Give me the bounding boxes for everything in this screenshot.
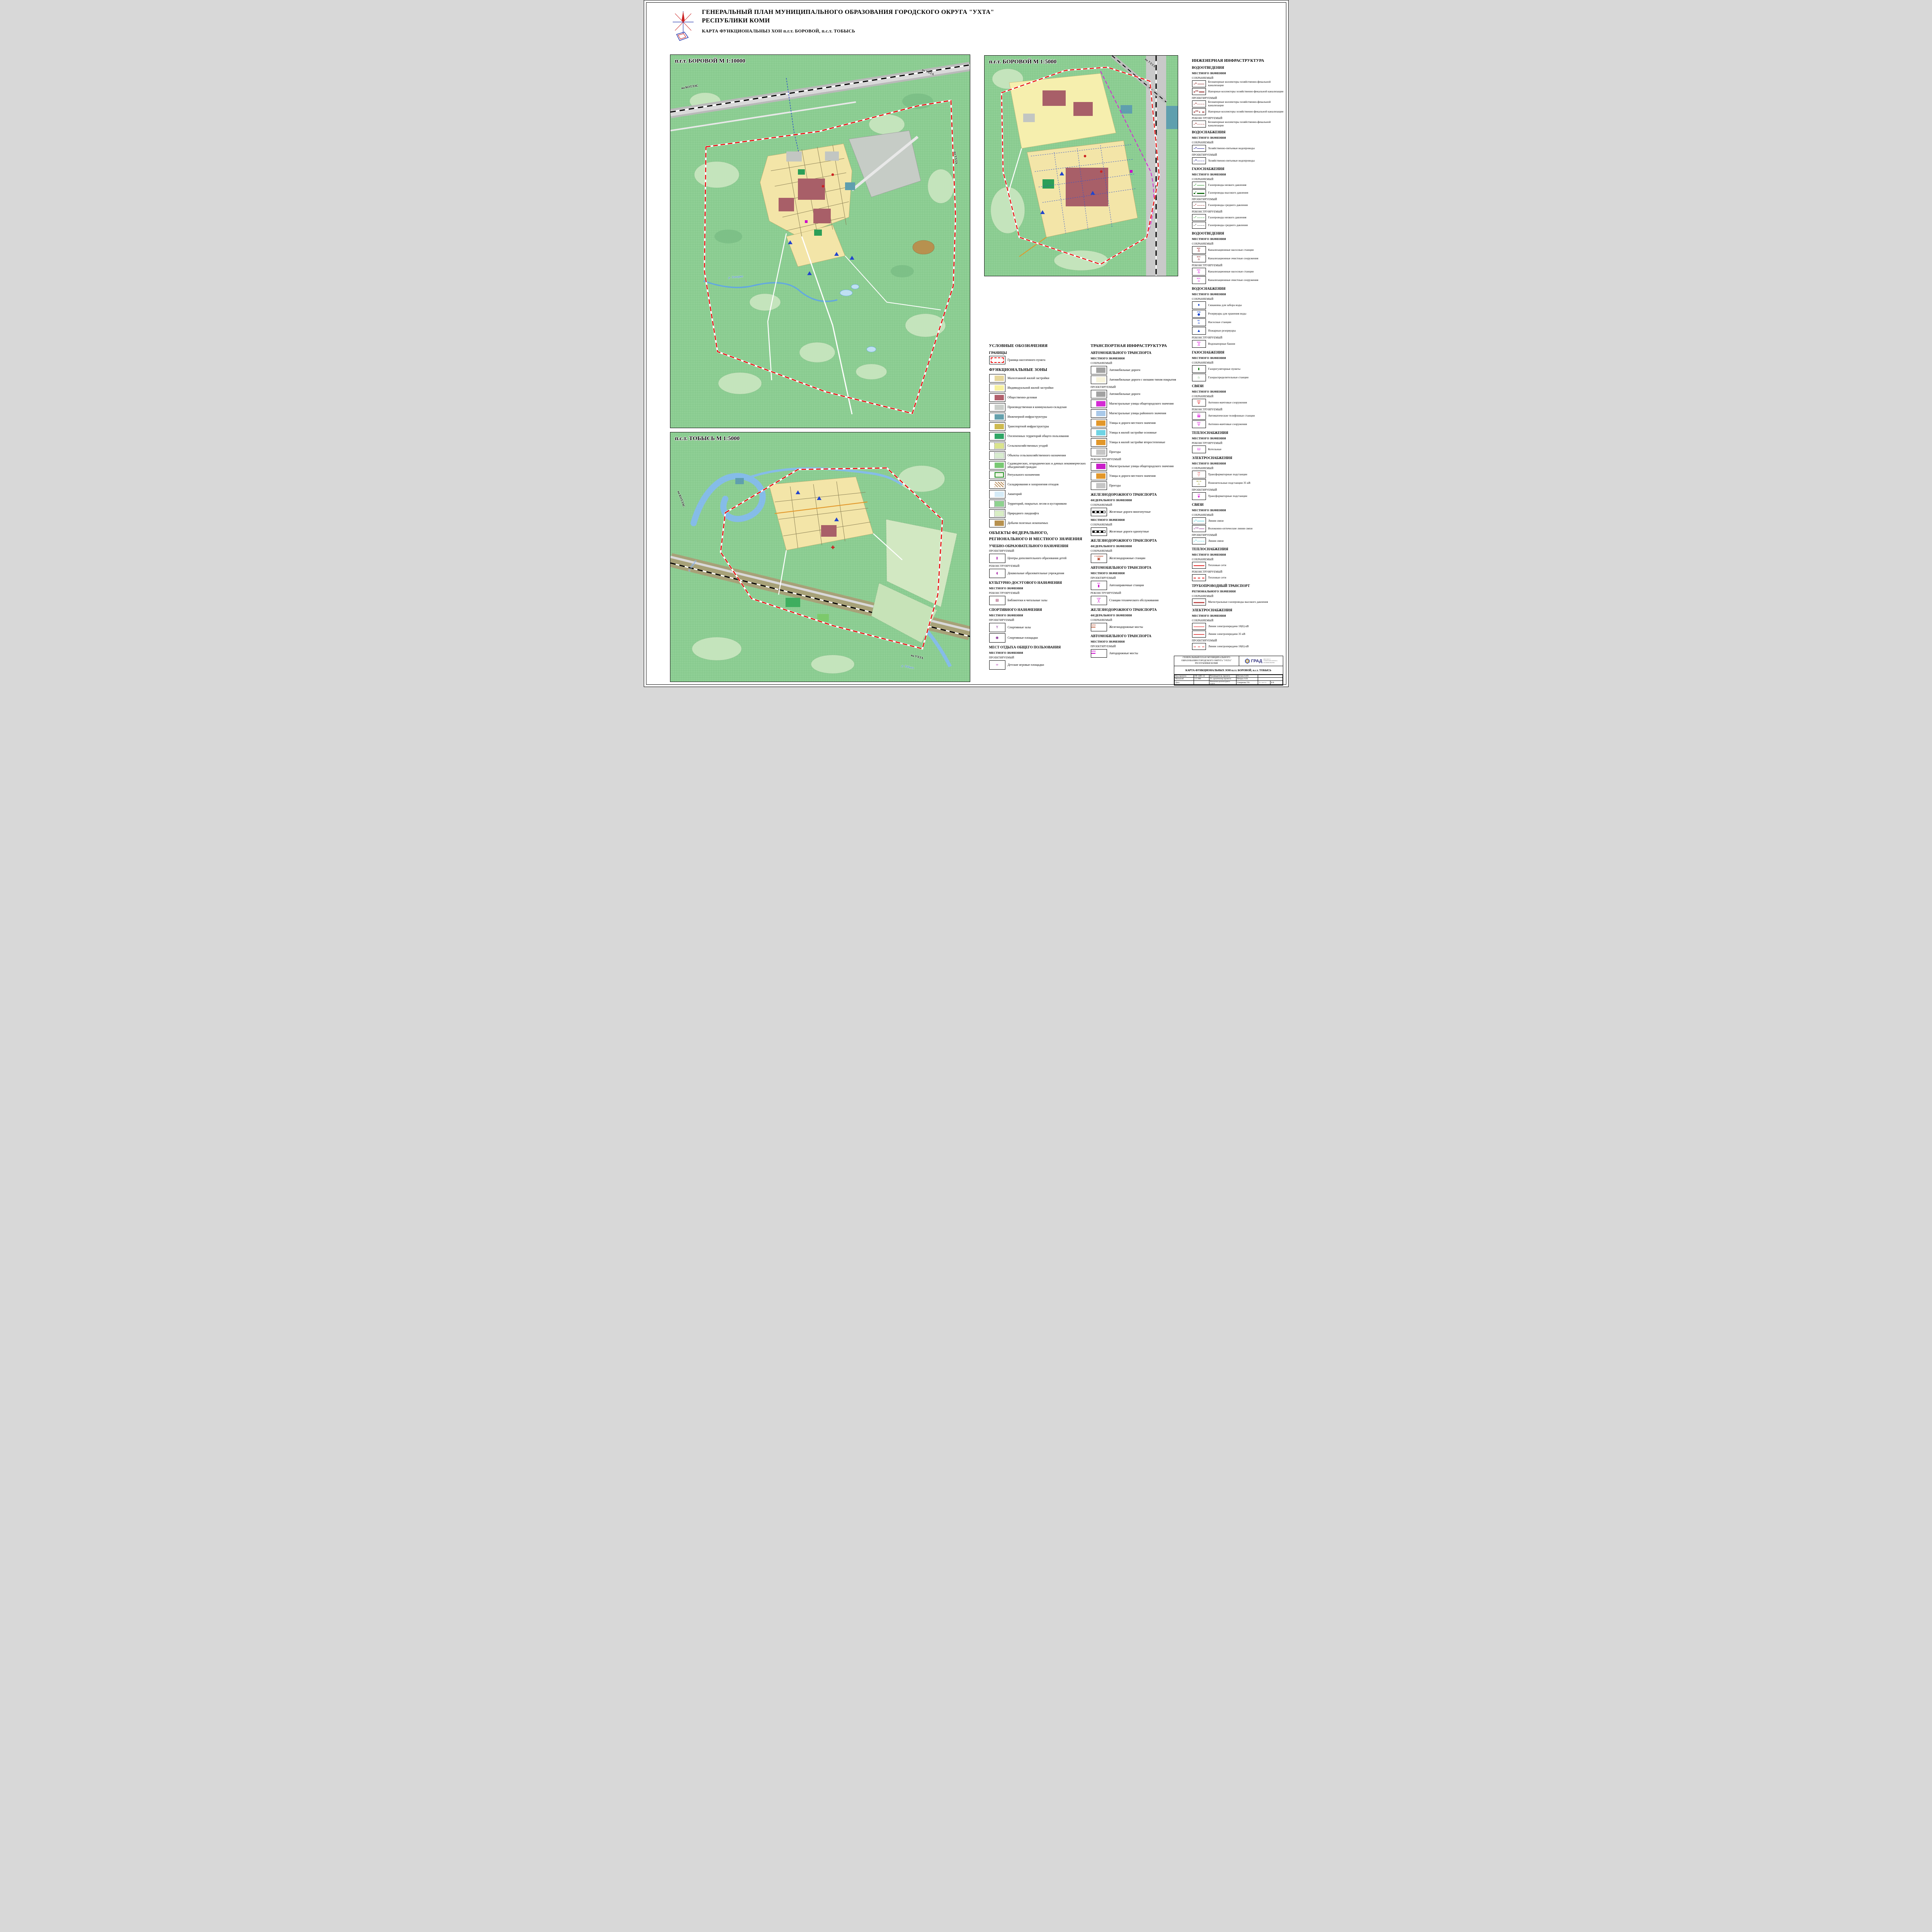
legend-swatch-line: VО: [1192, 525, 1206, 532]
legend-label: Автомобильные дороги с низшим типом покр…: [1109, 378, 1176, 381]
legend-heading: МЕСТ ОТДЫХА ОБЩЕГО ПОЛЬЗОВАНИЯ: [989, 645, 1087, 649]
legend-label: Автоматические телефонные станции: [1208, 414, 1255, 418]
legend-label: Инженерной инфраструктуры: [1008, 415, 1047, 418]
legend-label: Спортивные площадки: [1008, 636, 1038, 639]
legend-item: РЧВ●Резервуары для хранения воды: [1192, 310, 1284, 318]
legend-heading: ПРОЕКТИРУЕМЫЙ: [1192, 97, 1284, 100]
legend-heading: СОХРАНЯЕМЫЙ: [1192, 558, 1284, 561]
legend-label: Магистральные улицы общегородского значе…: [1109, 402, 1174, 405]
legend-swatch-zone: [1091, 429, 1107, 437]
map-tobys-5000-graphic: [670, 432, 970, 682]
legend-heading: МЕСТНОГО ЗНАЧЕНИЯ: [1192, 462, 1284, 465]
legend-item: ◉Спортивные площадки: [989, 633, 1087, 643]
map1-label: п.г.т. БОРОВОЙ М 1:10000: [675, 58, 745, 65]
legend-swatch-icon: КОС⌂: [1192, 255, 1206, 262]
legend-item: VЛинии связи: [1192, 537, 1284, 544]
legend-label: Железнодорожные станции: [1109, 556, 1146, 560]
legend-symbol-icon: ╳: [1098, 600, 1100, 603]
map-borovoy-5000: п.г.т. БОРОВОЙ М 1:5000 на УХТА: [984, 55, 1178, 276]
legend-swatch-zone: [989, 490, 1005, 498]
legend-label: Канализационные насосные станции: [1208, 270, 1254, 274]
legend-swatch-line: НК: [1192, 108, 1206, 115]
legend-swatch-zone: [1091, 409, 1107, 418]
legend-line-letter: К: [1195, 103, 1197, 105]
legend-label: Улицы и дороги местного значения: [1109, 474, 1156, 478]
legend-swatch-icon: ▤: [989, 596, 1005, 605]
legend-label: Напорные коллекторы хозяйственно-фекальн…: [1208, 90, 1284, 94]
legend-swatch-line: В: [1192, 157, 1206, 164]
legend-line-letter: В: [1195, 147, 1197, 150]
legend-swatch-zone: [989, 422, 1005, 431]
legend-label: Понизительные подстанции 35 кВ: [1208, 481, 1251, 485]
legend-item: Малоэтажной жилой застройки: [989, 374, 1087, 383]
grad-logo-subtext: ИНСТИТУТ ТЕРРИТОРИАЛЬНОГО ПЛАНИРОВАНИЯ: [1264, 658, 1277, 663]
legend-item: Производственная и коммунально-складская: [989, 403, 1087, 412]
legend-heading: ЖЕЛЕЗНОДОРОЖНОГО ТРАНСПОРТА: [1091, 539, 1188, 543]
legend-label: Автомобильные дороги: [1109, 368, 1141, 372]
legend-swatch-rail: [1091, 508, 1107, 516]
legend-label: Сельскохозяйственных угодий: [1008, 444, 1048, 447]
legend-heading: СВЯЗИ: [1192, 384, 1284, 388]
legend-label: Объекты сельскохозяйственного назначения: [1008, 454, 1066, 457]
legend-swatch-bridge: ΛΛΛ: [1091, 623, 1107, 631]
legend-swatch-line: НК: [1192, 88, 1206, 95]
legend-heading: ТЕПЛОСНАБЖЕНИЯ: [1192, 431, 1284, 435]
legend-item: НКНапорные коллекторы хозяйственно-фекал…: [1192, 108, 1284, 115]
legend-symbol-icon: Ψ: [1197, 423, 1200, 427]
legend-swatch-line: К: [1192, 80, 1206, 87]
legend-item: ♦Скважины для забора воды: [1192, 301, 1284, 309]
legend-heading: ФЕДЕРАЛЬНОГО ЗНАЧЕНИЯ: [1091, 544, 1188, 548]
legend-heading: МЕСТНОГО ЗНАЧЕНИЯ: [1192, 173, 1284, 176]
legend-heading: СОХРАНЯЕМЫЙ: [1192, 298, 1284, 301]
legend-swatch-line: [1192, 631, 1206, 638]
legend-swatch-zone: [989, 451, 1005, 460]
grad-logo-icon: [1245, 658, 1250, 664]
legend-heading: ГРАНИЦЫ: [989, 351, 1087, 355]
legend-swatch-icon: ТП▼: [1192, 492, 1206, 500]
legend-heading: ВОДООТВЕДЕНИЯ: [1192, 231, 1284, 235]
legend-heading: ВОДОСНАБЖЕНИЯ: [1192, 287, 1284, 291]
legend-item: ШКотельные: [1192, 446, 1284, 453]
map2-label: п.г.т. БОРОВОЙ М 1:5000: [989, 59, 1057, 65]
legend-symbol-icon: ⌂: [1198, 279, 1200, 282]
legend-label: Канализационные очистные сооружения: [1208, 257, 1259, 260]
legend-item: ГГазопроводы среднего давления: [1192, 222, 1284, 229]
legend-label: Железные дороги многопутные: [1109, 510, 1151, 514]
legend-swatch-icon: НС⌂: [1192, 318, 1206, 326]
legend-label: Резервуары для хранения воды: [1208, 312, 1247, 316]
legend-item: Автомобильные дороги: [1091, 366, 1188, 374]
legend-heading: СОХРАНЯЕМЫЙ: [1192, 595, 1284, 598]
legend-swatch-icon: АМСΨ: [1192, 399, 1206, 406]
legend-label: Волоконно-оптические линии связи: [1208, 527, 1253, 531]
legend-swatch-icon: ♦: [1192, 301, 1206, 309]
legend-heading: СОХРАНЯЕМЫЙ: [1192, 141, 1284, 144]
legend-label: Магистральные улицы общегородского значе…: [1109, 464, 1174, 468]
legend-label: Хозяйственно-питьевые водопроводы: [1208, 159, 1255, 163]
legend-swatch-line: Г: [1192, 214, 1206, 221]
legend-label: Котельные: [1208, 448, 1221, 451]
legend-swatch-icon: СТАНЦИЯ▣: [1091, 554, 1107, 563]
legend-item: ГГазопроводы низкого давления: [1192, 182, 1284, 189]
legend-heading: РЕКОНСТРУИРУЕМЫЙ: [1192, 570, 1284, 573]
legend-symbol-icon: ▮: [996, 557, 998, 560]
legend-heading: МЕСТНОГО ЗНАЧЕНИЯ: [1192, 509, 1284, 512]
legend-heading: ВОДООТВЕДЕНИЯ: [1192, 66, 1284, 70]
legend-item: ◖Дошкольные образовательные учреждения: [989, 569, 1087, 578]
legend-swatch-zone: [1091, 366, 1107, 374]
legend-label: Линии связи: [1208, 519, 1224, 523]
title-block-map-title: КАРТА ФУНКЦИОНАЛЬНЫХ ЗОН п.г.т. БОРОВОЙ,…: [1174, 666, 1283, 675]
legend-item: ΥСпортивные залы: [989, 623, 1087, 632]
legend-swatch-zone: [1091, 400, 1107, 408]
legend-symbol-icon: ▣: [1097, 558, 1100, 561]
legend-label: Хозяйственно-питьевые водопроводы: [1208, 147, 1255, 150]
legend-heading: ФЕДЕРАЛЬНОГО ЗНАЧЕНИЯ: [1091, 614, 1188, 617]
legend-item: СТО╳Станции технического обслуживания: [1091, 596, 1188, 605]
legend-label: Линии связи: [1208, 539, 1224, 543]
legend-item: ВХозяйственно-питьевые водопроводы: [1192, 157, 1284, 164]
legend-heading: АВТОМОБИЛЬНОГО ТРАНСПОРТА: [1091, 566, 1188, 570]
legend-heading: ЖЕЛЕЗНОДОРОЖНОГО ТРАНСПОРТА: [1091, 608, 1188, 612]
legend-symbol-icon: ▮: [1098, 585, 1100, 588]
legend-swatch-zone: [989, 432, 1005, 440]
legend-item: Транспортной инфраструктуры: [989, 422, 1087, 431]
legend-heading: СОХРАНЯЕМЫЙ: [1192, 242, 1284, 245]
legend-item: КОС⌂Канализационные очистные сооружения: [1192, 276, 1284, 284]
legend-item: Автомобильные дороги с низшим типом покр…: [1091, 376, 1188, 384]
legend-label: Газопроводы среднего давления: [1208, 204, 1248, 207]
legend-heading: РЕКОНСТРУИРУЕМЫЙ: [1192, 264, 1284, 267]
legend-symbol-icon: ⌂: [1198, 258, 1200, 261]
legend-heading: ТРАНСПОРТНАЯ ИНФРАСТРУКТУРА: [1091, 344, 1188, 348]
legend-swatch-icon: РЧВ●: [1192, 310, 1206, 318]
legend-heading: ЭЛЕКТРОСНАБЖЕНИЯ: [1192, 456, 1284, 460]
legend-symbol-icon: △: [1197, 482, 1200, 485]
legend-label: Линии электропередачи 10(6) кВ: [1208, 645, 1249, 648]
legend-symbol-icon: ▼: [1197, 495, 1200, 498]
legend-label: Граница населенного пункта: [1008, 358, 1046, 362]
legend-symbol-icon: ∞: [996, 663, 999, 667]
legend-label: Антенно-мачтовые сооружения: [1208, 401, 1247, 405]
legend-symbol-icon: ▮: [1198, 367, 1199, 371]
legend-label: Линии электропередачи 10(6) кВ: [1208, 625, 1249, 628]
legend-heading: ПРОЕКТИРУЕМЫЙ: [989, 656, 1087, 659]
legend-heading: СОХРАНЯЕМЫЙ: [1192, 361, 1284, 364]
bridge-icon: ΛΛΛ: [1091, 650, 1095, 654]
legend-label: Проезды: [1109, 484, 1121, 487]
legend-item: ГГазопроводы высокого давления: [1192, 189, 1284, 196]
legend-label: Производственная и коммунально-складская: [1008, 405, 1067, 409]
legend-label: Улицы в жилой застройке основные: [1109, 431, 1157, 434]
legend-swatch-icon: АЗС▮: [1091, 581, 1107, 590]
legend-item: КБезнапорные коллекторы хозяйственно-фек…: [1192, 100, 1284, 107]
legend-label: Автозаправочные станции: [1109, 583, 1144, 587]
legend-heading: МЕСТНОГО ЗНАЧЕНИЯ: [1192, 237, 1284, 241]
legend-item: Автомобильные дороги: [1091, 390, 1188, 398]
legend-item: ГГазопроводы низкого давления: [1192, 214, 1284, 221]
legend-symbol-icon: ☎: [1197, 415, 1201, 418]
legend-label: Автомобильные дороги: [1109, 392, 1141, 396]
legend-heading: СОХРАНЯЕМЫЙ: [1192, 178, 1284, 181]
legend-swatch-line: Г: [1192, 182, 1206, 189]
legend-heading: ОБЪЕКТЫ ФЕДЕРАЛЬНОГО,: [989, 531, 1087, 535]
legend-label: Насосные станции: [1208, 321, 1231, 324]
legend-item: ▮Центры дополнительного образования дете…: [989, 554, 1087, 563]
legend-item: ТП▽Трансформаторные подстанции: [1192, 471, 1284, 478]
legend-item: ВНБДВодонапорные башни: [1192, 340, 1284, 348]
legend-label: Газопроводы среднего давления: [1208, 224, 1248, 227]
legend-heading: ЭЛЕКТРОСНАБЖЕНИЯ: [1192, 608, 1284, 612]
legend-heading: ГАЗОСНАБЖЕНИЯ: [1192, 350, 1284, 354]
legend-item: Озелененных территорий общего пользовани…: [989, 432, 1087, 440]
legend-heading: ПРОЕКТИРУЕМЫЙ: [1192, 153, 1284, 156]
legend-swatch-zone: [989, 442, 1005, 450]
legend-symbol-icon: Ψ: [1197, 402, 1200, 405]
legend-item: Акваторий: [989, 490, 1087, 498]
legend-swatch-line: V: [1192, 537, 1206, 544]
legend-heading: УСЛОВНЫЕ ОБОЗНАЧЕНИЯ: [989, 344, 1087, 348]
legend-heading: МЕСТНОГО ЗНАЧЕНИЯ: [989, 614, 1087, 617]
legend-item: Проезды: [1091, 448, 1188, 456]
legend-swatch-line: [1192, 623, 1206, 630]
legend-symbol-icon: ▲: [1197, 329, 1200, 332]
legend-symbol-icon: Д: [1197, 343, 1200, 346]
legend-heading: ФЕДЕРАЛЬНОГО ЗНАЧЕНИЯ: [1091, 498, 1188, 502]
legend-swatch-zone: [1091, 448, 1107, 456]
legend-label: Канализационные очистные сооружения: [1208, 279, 1259, 282]
legend-heading: СОХРАНЯЕМЫЙ: [1091, 523, 1188, 526]
legend-heading: СОХРАНЯЕМЫЙ: [1091, 503, 1188, 507]
legend-item: ГГазопроводы среднего давления: [1192, 202, 1284, 209]
legend-label: Пожарные резервуары: [1208, 329, 1236, 333]
legend-item: Линии электропередачи 10(6) кВ: [1192, 643, 1284, 650]
legend-heading: СОХРАНЯЕМЫЙ: [1091, 549, 1188, 553]
legend-swatch-icon: ▮: [1192, 365, 1206, 373]
legend-swatch-zone: [989, 374, 1005, 383]
legend-label: Напорные коллекторы хозяйственно-фекальн…: [1208, 110, 1284, 114]
legend-swatch-zone: [989, 519, 1005, 527]
legend-label: Газопроводы низкого давления: [1208, 216, 1247, 219]
legend-heading: РЕКОНСТРУИРУЕМЫЙ: [1192, 117, 1284, 120]
legend-column-zones: УСЛОВНЫЕ ОБОЗНАЧЕНИЯГРАНИЦЫГраница насел…: [989, 340, 1087, 671]
legend-symbol-icon: ▽: [1197, 474, 1200, 477]
legend-heading: АВТОМОБИЛЬНОГО ТРАНСПОРТА: [1091, 634, 1188, 638]
legend-swatch-icon: ∞: [989, 660, 1005, 670]
legend-item: Магистральные улицы общегородского значе…: [1091, 400, 1188, 408]
legend-heading: МЕСТНОГО ЗНАЧЕНИЯ: [1091, 571, 1188, 575]
legend-item: ПС 35△Понизительные подстанции 35 кВ: [1192, 479, 1284, 487]
legend-heading: ПРОЕКТИРУЕМЫЙ: [1192, 639, 1284, 642]
legend-item: VЛинии связи: [1192, 517, 1284, 524]
legend-heading: ПРОЕКТИРУЕМЫЙ: [1192, 198, 1284, 201]
legend-heading: АВТОМОБИЛЬНОГО ТРАНСПОРТА: [1091, 351, 1188, 355]
legend-swatch-zone: [989, 471, 1005, 479]
page-subtitle: КАРТА ФУНКЦИОНАЛЬНЫЗ ХОН п.г.т. БОРОВОЙ,…: [702, 28, 1243, 34]
legend-label: Трансформаторные подстанции: [1208, 495, 1247, 498]
legend-heading: ПРОЕКТИРУЕМЫЙ: [989, 619, 1087, 622]
legend-heading: РЕКОНСТРУИРУЕМЫЙ: [1192, 442, 1284, 445]
legend-swatch-icon: АМСΨ: [1192, 420, 1206, 428]
legend-item: КБезнапорные коллекторы хозяйственно-фек…: [1192, 121, 1284, 128]
legend-label: Ритуального назначения: [1008, 473, 1040, 476]
legend-item: Тепловые сети: [1192, 574, 1284, 581]
legend-line-letter: К: [1195, 123, 1197, 125]
legend-item: Магистральные улицы общегородского значе…: [1091, 462, 1188, 471]
legend-swatch-zone: [989, 393, 1005, 402]
legend-heading: СОХРАНЯЕМЫЙ: [1192, 514, 1284, 517]
legend-swatch-icon: КНСΔ: [1192, 268, 1206, 276]
grad-logo-text: ГРАД: [1251, 659, 1262, 663]
legend-item: Сельскохозяйственных угодий: [989, 442, 1087, 450]
legend-line-letter: К: [1195, 83, 1197, 85]
legend-swatch-line: [1192, 562, 1206, 569]
legend-swatch-zone: [989, 413, 1005, 421]
legend-heading: СОХРАНЯЕМЫЙ: [1091, 619, 1188, 622]
legend-swatch-zone: [989, 384, 1005, 392]
legend-line-letter: Г: [1195, 192, 1197, 194]
legend-heading: ИНЖЕНЕРНАЯ ИНФРАСТРУКТУРА: [1192, 59, 1284, 63]
compass-rose-icon: [671, 10, 695, 46]
title-block-org: ГЕНЕРАЛЬНЫЙ ПЛАН МУНИЦИПАЛЬНОГО ОБРАЗОВА…: [1174, 656, 1240, 666]
legend-line-letter: Г: [1195, 216, 1197, 219]
legend-label: Малоэтажной жилой застройки: [1008, 376, 1049, 380]
legend-heading: СПОРТИВНОГО НАЗНАЧЕНИЯ: [989, 608, 1087, 612]
legend-label: Тепловые сети: [1208, 576, 1226, 580]
map-borovoy-10000: п.г.т. БОРОВОЙ М 1:10000 на КОТЛАС на УХ…: [670, 54, 970, 428]
legend-item: Улицы в жилой застройке основные: [1091, 429, 1188, 437]
legend-item: Линии электропередачи 35 кВ: [1192, 631, 1284, 638]
legend-symbol-icon: ●: [1197, 313, 1200, 316]
legend-heading: ГАЗОСНАБЖЕНИЯ: [1192, 167, 1284, 171]
legend-label: Общественно-деловая: [1008, 396, 1037, 399]
legend-symbol-icon: Ш: [1197, 448, 1201, 451]
legend-heading: СОХРАНЯЕМЫЙ: [1192, 77, 1284, 80]
legend-heading: ПРОЕКТИРУЕМЫЙ: [1091, 577, 1188, 580]
legend-label: Трансформаторные подстанции: [1208, 473, 1247, 476]
legend-item: КОС⌂Канализационные очистные сооружения: [1192, 255, 1284, 262]
legend-label: Складирования и захоронения отходов: [1008, 483, 1059, 486]
legend-item: Магистральные улицы районного значения: [1091, 409, 1188, 418]
legend-swatch-line: [1192, 574, 1206, 581]
legend-column-engineering: ИНЖЕНЕРНАЯ ИНФРАСТРУКТУРАВОДООТВЕДЕНИЯМЕ…: [1192, 55, 1284, 651]
legend-item: Объекты сельскохозяйственного назначения: [989, 451, 1087, 460]
legend-heading: ТЕПЛОСНАБЖЕНИЯ: [1192, 547, 1284, 551]
legend-swatch-icon: АТС☎: [1192, 412, 1206, 420]
legend-swatch-zone: [989, 461, 1005, 469]
legend-symbol-icon: ♦: [1197, 304, 1200, 307]
legend-heading: УЧЕБНО-ОБРАЗОВАТЕЛЬНОГО НАЗНАЧЕНИЯ: [989, 544, 1087, 548]
legend-swatch-line: [1192, 643, 1206, 650]
legend-label: Центры дополнительного образования детей: [1008, 556, 1067, 560]
legend-label: Магистральные газопроводы высокого давле…: [1208, 600, 1268, 604]
legend-swatch-zone: [1091, 472, 1107, 480]
legend-swatch-zone: [1091, 419, 1107, 427]
legend-heading: ПРОЕКТИРУЕМЫЙ: [1091, 645, 1188, 648]
legend-label: Природного ландшафта: [1008, 512, 1039, 515]
legend-swatch-zone: [1091, 390, 1107, 398]
legend-heading: РЕКОНСТРУИРУЕМЫЙ: [1192, 336, 1284, 339]
legend-label: Библиотеки и читальные залы: [1008, 599, 1048, 602]
title-block-table: Код проекта ГП 1485-12 Руководитель прое…: [1174, 675, 1283, 685]
legend-label: Скважины для забора воды: [1208, 304, 1242, 307]
legend-swatch-icon: ПС 35△: [1192, 479, 1206, 487]
legend-item: НС⌂Насосные станции: [1192, 318, 1284, 326]
legend-label: Газопроводы низкого давления: [1208, 184, 1247, 187]
legend-swatch-icon: ВНБД: [1192, 340, 1206, 348]
legend-heading: МЕСТНОГО ЗНАЧЕНИЯ: [1192, 390, 1284, 393]
page-title-line2: РЕСПУБЛИКИ КОМИ: [702, 17, 1243, 24]
legend-swatch-icon: ◖: [989, 569, 1005, 578]
legend-label: Магистральные улицы районного значения: [1109, 412, 1166, 415]
legend-item: Проезды: [1091, 481, 1188, 490]
legend-line-letter: V: [1195, 520, 1197, 522]
legend-item: Линии электропередачи 10(6) кВ: [1192, 623, 1284, 630]
page-title-line1: ГЕНЕРАЛЬНЫЙ ПЛАН МУНИЦИПАЛЬНОГО ОБРАЗОВА…: [702, 9, 1243, 16]
legend-label: Железнодорожные мосты: [1109, 625, 1143, 629]
legend-item: ∞Детские игровые площадки: [989, 660, 1087, 670]
title-block: ГЕНЕРАЛЬНЫЙ ПЛАН МУНИЦИПАЛЬНОГО ОБРАЗОВА…: [1174, 656, 1283, 685]
legend-item: Улицы в жилой застройке второстепенные: [1091, 438, 1188, 447]
legend-swatch-icon: ◉: [989, 633, 1005, 643]
legend-label: Озелененных территорий общего пользовани…: [1008, 434, 1069, 438]
legend-item: Территорий, покрытых лесом и кустарником: [989, 500, 1087, 508]
legend-item: АЗС▮Автозаправочные станции: [1091, 581, 1188, 590]
legend-label: Канализационные насосные станции: [1208, 248, 1254, 252]
legend-item: Железные дороги многопутные: [1091, 508, 1188, 516]
legend-swatch-line: [1192, 599, 1206, 605]
legend-swatch-icon: Υ: [989, 623, 1005, 632]
legend-label: Железные дороги однопутные: [1109, 530, 1149, 533]
legend-heading: КУЛЬТУРНО-ДОСУГОВОГО НАЗНАЧЕНИЯ: [989, 581, 1087, 585]
plan-sheet: ГЕНЕРАЛЬНЫЙ ПЛАН МУНИЦИПАЛЬНОГО ОБРАЗОВА…: [644, 0, 1289, 687]
legend-heading: МЕСТНОГО ЗНАЧЕНИЯ: [1192, 71, 1284, 75]
legend-heading: РЕКОНСТРУИРУЕМЫЙ: [989, 565, 1087, 568]
legend-heading: СОХРАНЯЕМЫЙ: [1192, 395, 1284, 398]
legend-label: Безнапорные коллекторы хозяйственно-фека…: [1208, 100, 1284, 107]
legend-line-letter: Г: [1195, 224, 1197, 226]
legend-heading: РЕКОНСТРУИРУЕМЫЙ: [1091, 458, 1188, 461]
legend-heading: РЕГИОНАЛЬНОГО И МЕСТНОГО ЗНАЧЕНИЯ: [989, 537, 1087, 541]
legend-label: Безнапорные коллекторы хозяйственно-фека…: [1208, 121, 1284, 127]
legend-heading: РЕКОНСТРУИРУЕМЫЙ: [1192, 408, 1284, 411]
legend-swatch-icon: ♨: [1192, 374, 1206, 381]
legend-heading: МЕСТНОГО ЗНАЧЕНИЯ: [1192, 293, 1284, 296]
legend-swatch-zone: [989, 509, 1005, 518]
legend-heading: ВОДОСНАБЖЕНИЯ: [1192, 130, 1284, 134]
legend-heading: СОХРАНЯЕМЫЙ: [1192, 467, 1284, 470]
legend-symbol-icon: ◉: [996, 636, 999, 640]
legend-line-letter: НК: [1195, 90, 1199, 93]
legend-item: Ритуального назначения: [989, 471, 1087, 479]
legend-label: Спортивные залы: [1008, 626, 1031, 629]
legend-swatch-icon: ТП▽: [1192, 471, 1206, 478]
legend-heading: МЕСТНОГО ЗНАЧЕНИЯ: [1192, 553, 1284, 556]
legend-item: ▮Газорегуляторные пункты: [1192, 365, 1284, 373]
legend-heading: ТРУБОПРОВОДНЫЙ ТРАНСПОРТ: [1192, 584, 1284, 588]
legend-item: АМСΨАнтенно-мачтовые сооружения: [1192, 420, 1284, 428]
legend-heading: МЕСТНОГО ЗНАЧЕНИЯ: [1091, 357, 1188, 360]
legend-line-letter: НК: [1195, 111, 1199, 113]
legend-item: КБезнапорные коллекторы хозяйственно-фек…: [1192, 80, 1284, 87]
legend-swatch-zone: [989, 500, 1005, 508]
legend-item: АМСΨАнтенно-мачтовые сооружения: [1192, 399, 1284, 406]
legend-swatch-icon: ▮: [989, 554, 1005, 563]
legend-swatch-line: Г: [1192, 189, 1206, 196]
legend-symbol-icon: Δ: [1198, 249, 1200, 252]
legend-item: Улицы и дороги местного значения: [1091, 419, 1188, 427]
